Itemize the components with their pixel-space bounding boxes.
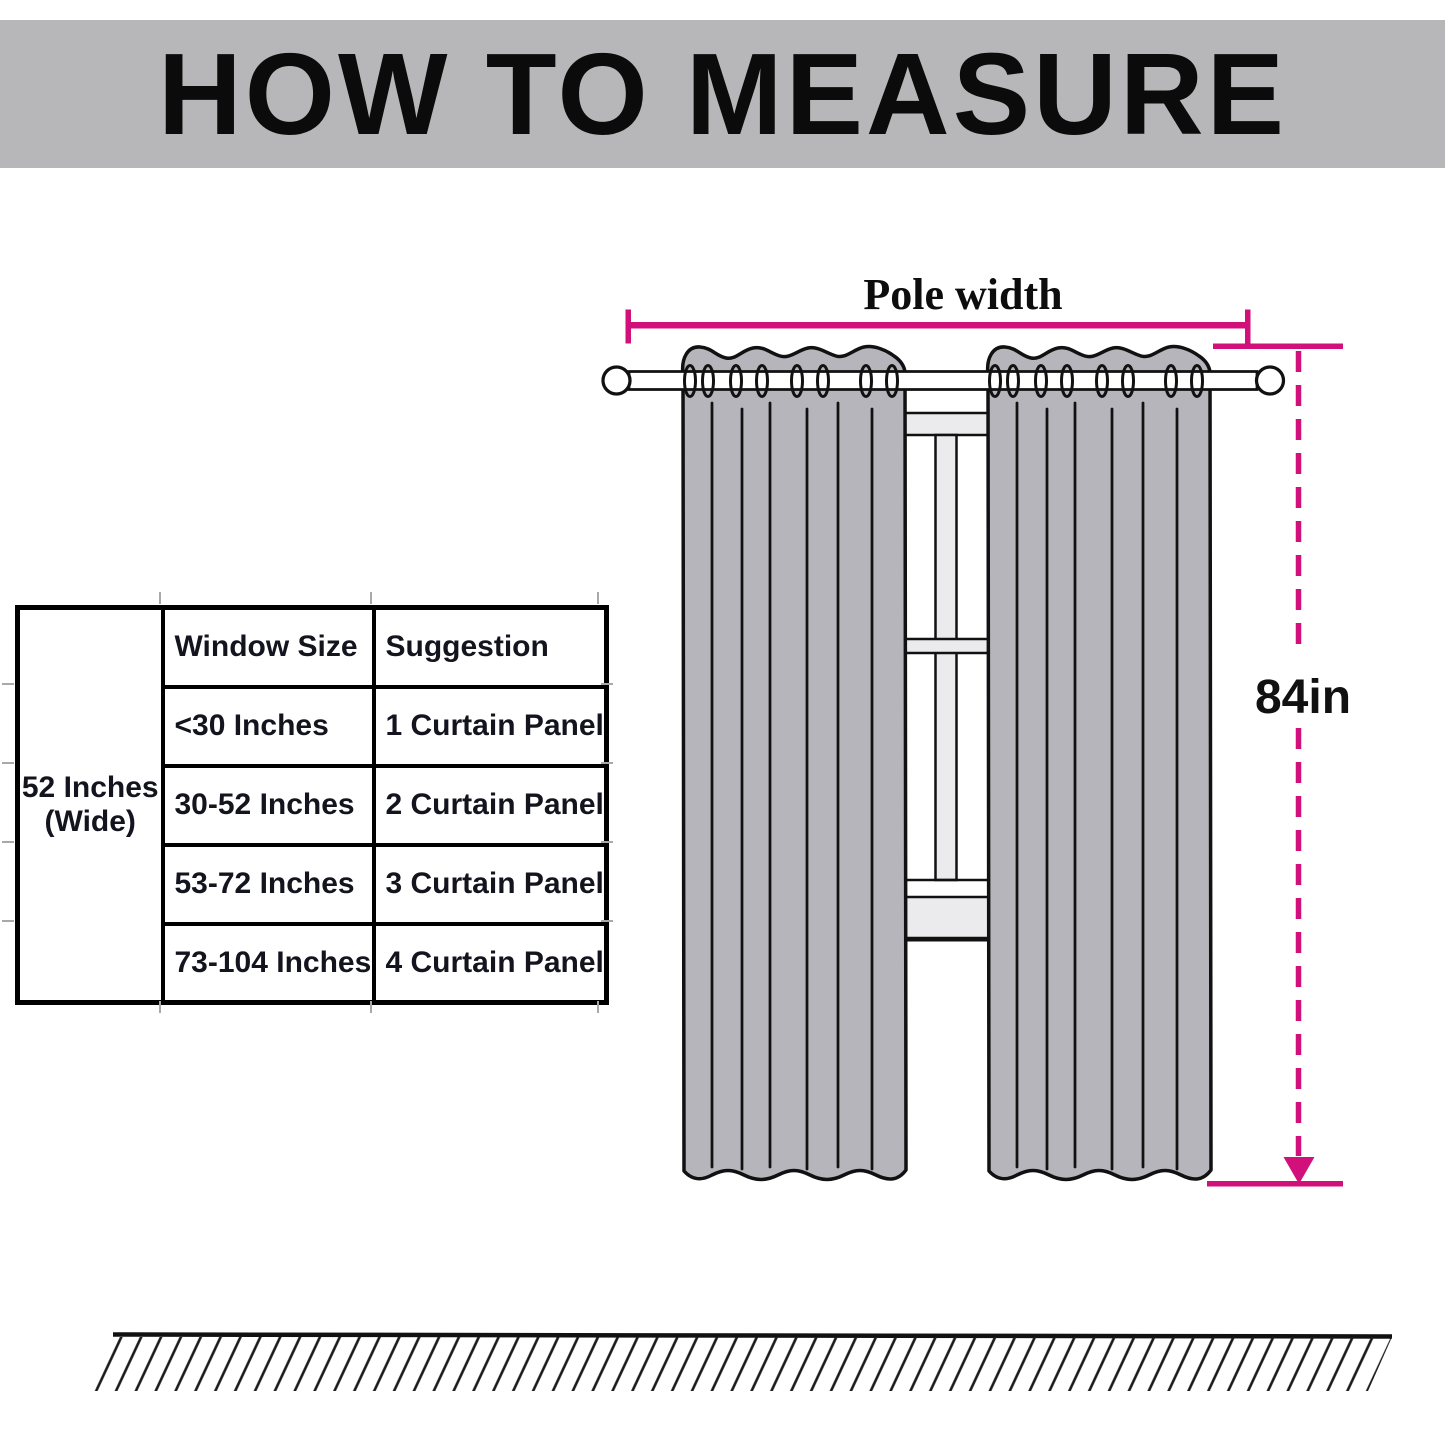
window-sill [903,897,990,938]
page-root: HOW TO MEASURE 52 Inches (Wide) Window S… [0,0,1445,1445]
rod-finial-right [1257,367,1284,394]
window-mid-rail [903,639,990,653]
floor-line [113,1335,1392,1337]
pole-width-line [628,322,1249,329]
window-frame [903,387,990,940]
rod-bar [629,372,1257,390]
rod-finial-left [603,367,630,394]
curtain-panel-left [683,347,906,1180]
height-top-line [1213,344,1343,350]
window-top-rail [903,413,990,435]
pole-width-tick-right [1245,310,1251,344]
floor [89,1335,1392,1392]
pole-width-tick-left [626,310,632,344]
height-measure: 84in [1207,344,1351,1187]
pole-width-label: Pole width [863,270,1062,319]
arrow-down-icon [1284,1157,1315,1184]
height-bottom-line [1207,1181,1343,1187]
height-label: 84in [1255,671,1351,724]
window-center-mullion [936,435,957,880]
measure-diagram: Pole width 84in [0,0,1445,1445]
pole-width-measure: Pole width [626,270,1251,344]
floor-hatching [89,1337,1392,1391]
curtain-panel-right [988,347,1211,1180]
